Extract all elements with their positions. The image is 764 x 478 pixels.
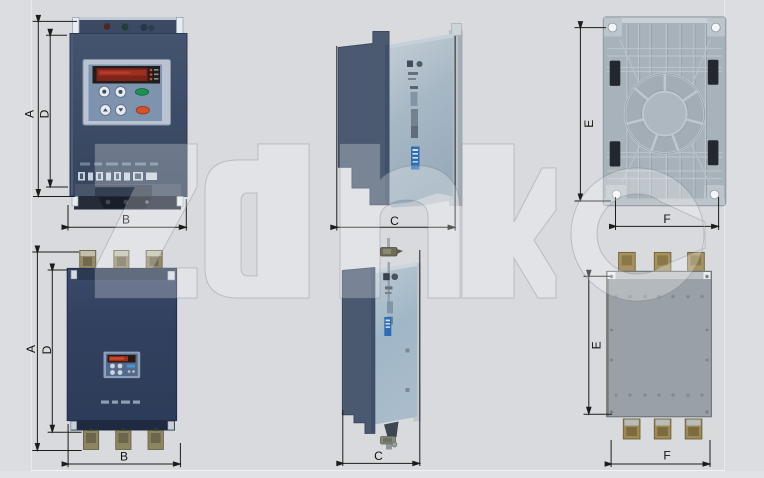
svg-text:D: D [40, 345, 54, 354]
svg-text:C: C [374, 449, 383, 463]
svg-text:F: F [663, 449, 670, 463]
svg-text:E: E [590, 341, 604, 349]
svg-text:A: A [22, 110, 36, 118]
svg-text:A: A [24, 345, 38, 353]
svg-text:B: B [120, 450, 128, 464]
svg-text:E: E [582, 120, 596, 128]
svg-text:D: D [38, 109, 52, 118]
svg-text:C: C [390, 214, 399, 228]
svg-text:F: F [663, 212, 670, 226]
